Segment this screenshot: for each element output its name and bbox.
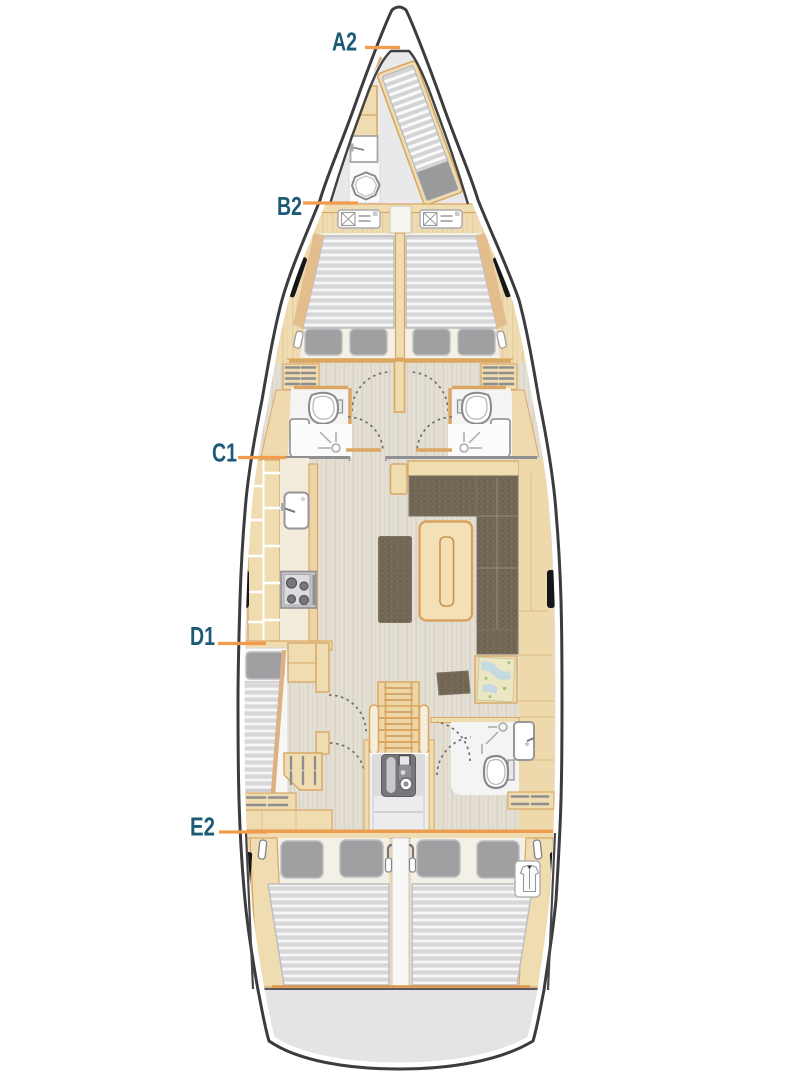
svg-text:B2: B2 (277, 191, 302, 221)
svg-text:E2: E2 (190, 812, 215, 842)
svg-text:C1: C1 (212, 438, 237, 468)
svg-text:A2: A2 (332, 27, 357, 57)
svg-text:D1: D1 (190, 621, 215, 651)
